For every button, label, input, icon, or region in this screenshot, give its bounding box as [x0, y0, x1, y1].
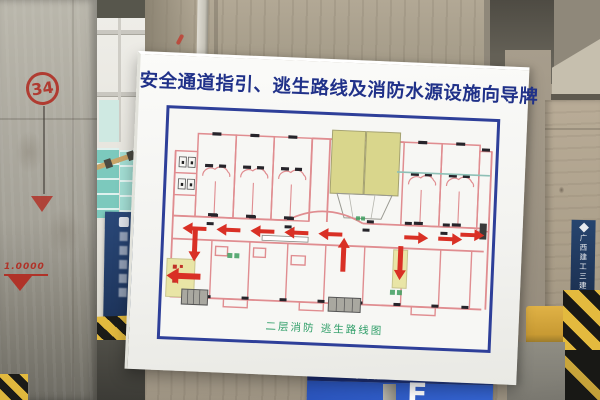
mounting-pole-bottom [383, 384, 396, 400]
building-outline [170, 133, 493, 310]
company-banner-vertical: 广西建工三建 [570, 220, 595, 294]
company-banner-text: 广西建工三建 [579, 234, 587, 291]
zone-glyph: F [406, 380, 427, 400]
axis-line [43, 106, 45, 194]
formwork-seam [0, 118, 97, 120]
hazard-stripes-right [563, 290, 600, 352]
floor-plan-frame: 二层消防 逃生路线图 [157, 105, 501, 353]
formwork-seam [545, 128, 600, 130]
end-room [477, 151, 492, 231]
scaffold-rail [97, 30, 145, 35]
elevation-value: 1.0000 [4, 262, 64, 272]
highlight-blocks [329, 130, 401, 220]
pillar-number: 34 [30, 78, 55, 100]
sign-logo-mark [119, 217, 129, 227]
benchmark-triangle-icon [8, 276, 32, 291]
plan-caption: 二层消防 逃生路线图 [160, 314, 488, 343]
corridor-fixture [262, 235, 308, 242]
floor-plan [163, 110, 495, 319]
construction-site-photo: 34 1.0000 广西建工三建 ❖ 广西建工 | 三建 F 安全通道指引、逃生… [0, 0, 600, 400]
survey-triangle-icon [31, 196, 53, 212]
gap-dark-band [97, 0, 145, 18]
safety-board: 安全通道指引、逃生路线及消防水源设施向导牌 [125, 51, 530, 385]
glass-panel [99, 100, 119, 142]
hazard-stripes-corner [0, 374, 28, 400]
elevation-benchmark: 1.0000 [4, 262, 64, 291]
hazard-stripes-right-lower [563, 350, 600, 400]
company-logo-icon [579, 223, 589, 233]
formwork-seam [72, 0, 74, 400]
board-title: 安全通道指引、逃生路线及消防水源设施向导牌 [139, 66, 529, 108]
